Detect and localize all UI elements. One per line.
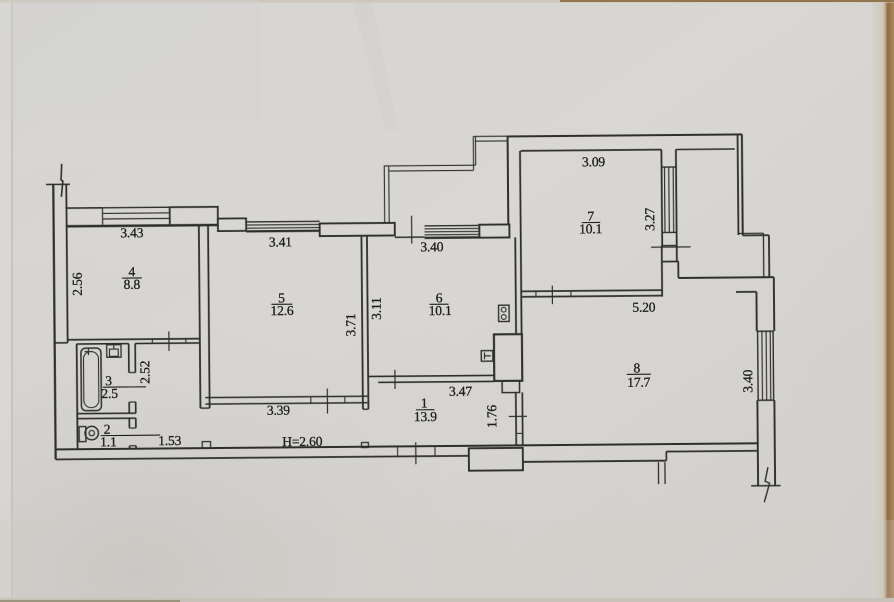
svg-text:1.76: 1.76 — [484, 405, 499, 429]
svg-text:2.52: 2.52 — [137, 360, 152, 384]
svg-text:17.7: 17.7 — [627, 375, 651, 390]
svg-text:8.8: 8.8 — [124, 277, 141, 292]
svg-text:3.27: 3.27 — [642, 207, 657, 231]
svg-text:1.53: 1.53 — [158, 433, 182, 448]
svg-text:3.39: 3.39 — [267, 403, 291, 418]
svg-text:2.5: 2.5 — [101, 386, 118, 401]
svg-text:3.47: 3.47 — [449, 384, 473, 399]
svg-text:3.71: 3.71 — [343, 313, 358, 336]
svg-text:10.1: 10.1 — [429, 303, 452, 318]
svg-text:3.43: 3.43 — [120, 225, 144, 240]
svg-text:13.9: 13.9 — [414, 409, 438, 424]
svg-text:3.40: 3.40 — [740, 369, 755, 393]
svg-text:3.09: 3.09 — [582, 154, 606, 169]
svg-text:5.20: 5.20 — [632, 300, 656, 315]
svg-text:1.1: 1.1 — [100, 434, 117, 449]
svg-text:3.40: 3.40 — [420, 239, 444, 254]
svg-text:2.56: 2.56 — [70, 272, 85, 296]
svg-text:10.1: 10.1 — [579, 221, 602, 236]
svg-text:12.6: 12.6 — [270, 303, 294, 318]
svg-text:3.11: 3.11 — [369, 297, 384, 320]
svg-text:8: 8 — [633, 360, 640, 375]
svg-text:3.41: 3.41 — [269, 234, 292, 249]
svg-text:H=2.60: H=2.60 — [282, 434, 323, 449]
